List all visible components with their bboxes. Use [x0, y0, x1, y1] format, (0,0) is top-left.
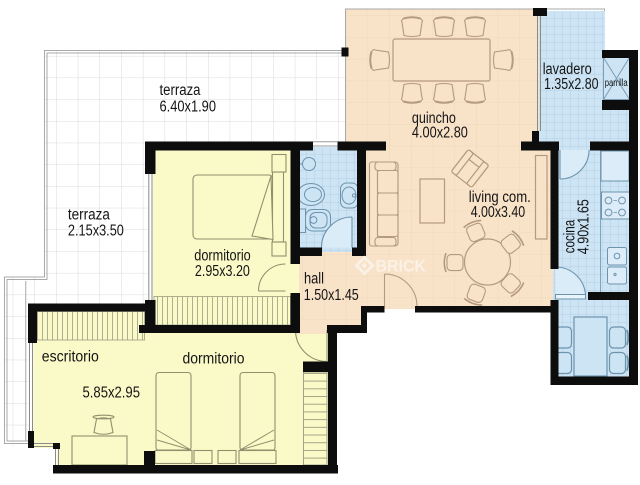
svg-text:hall: hall: [304, 271, 324, 288]
svg-text:1.35x2.80: 1.35x2.80: [544, 76, 599, 93]
svg-text:BRICK: BRICK: [376, 257, 427, 276]
svg-text:4.00x3.40: 4.00x3.40: [471, 204, 526, 221]
svg-text:terraza: terraza: [68, 206, 110, 223]
svg-text:4.00x2.80: 4.00x2.80: [412, 124, 468, 141]
svg-text:2.95x3.20: 2.95x3.20: [195, 263, 250, 280]
svg-text:escritorio: escritorio: [42, 349, 99, 366]
svg-text:4.90x1.65: 4.90x1.65: [576, 199, 593, 254]
svg-text:2.15x3.50: 2.15x3.50: [68, 222, 124, 239]
svg-text:parrilla: parrilla: [605, 78, 628, 89]
svg-text:dormitorio: dormitorio: [194, 248, 251, 265]
svg-text:5.85x2.95: 5.85x2.95: [83, 384, 141, 401]
svg-text:dormitorio: dormitorio: [183, 351, 245, 368]
svg-text:6.40x1.90: 6.40x1.90: [160, 99, 217, 116]
svg-text:1.50x1.45: 1.50x1.45: [304, 287, 359, 304]
svg-text:terraza: terraza: [160, 82, 201, 99]
